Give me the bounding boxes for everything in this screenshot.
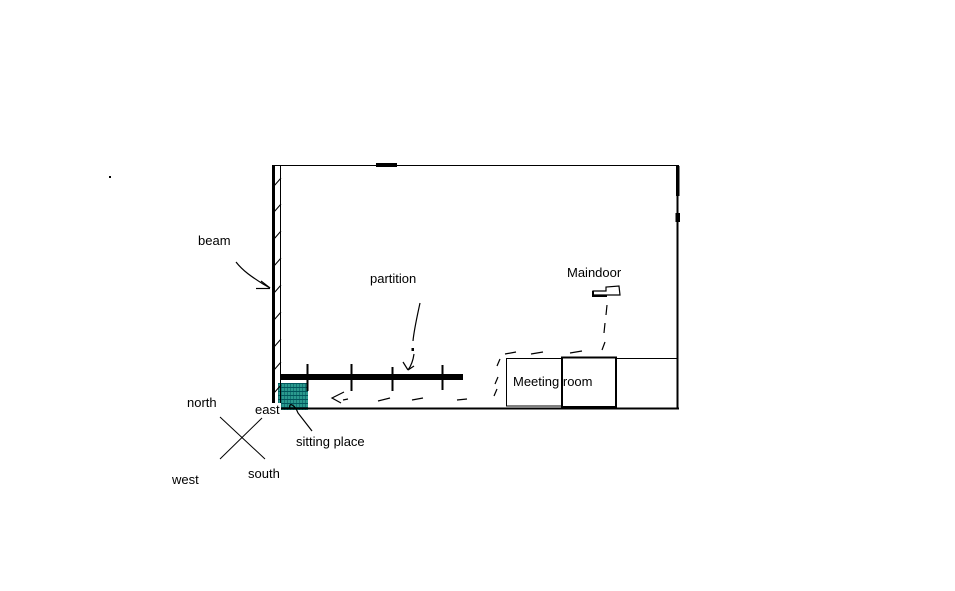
beam-wall-hatching xyxy=(274,178,281,393)
compass-west-label: west xyxy=(172,473,199,486)
partition-label: partition xyxy=(370,272,416,285)
compass-north-label: north xyxy=(187,396,217,409)
compass-south-label: south xyxy=(248,467,280,480)
stray-dot xyxy=(109,176,111,178)
meeting-room-label: Meeting room xyxy=(513,375,592,388)
compass-east-label: east xyxy=(254,403,281,416)
maindoor-label: Maindoor xyxy=(567,266,621,279)
route-arrowhead xyxy=(332,392,344,403)
partition-bar xyxy=(280,364,463,391)
maindoor-symbol xyxy=(593,286,620,296)
paint-canvas: beam partition Maindoor Meeting room sit… xyxy=(0,0,955,591)
sitting-place-label: sitting place xyxy=(296,435,365,448)
partition-arrow xyxy=(403,303,420,370)
beam-label: beam xyxy=(198,234,231,247)
sketch-linework xyxy=(0,0,955,591)
compass-cross xyxy=(220,417,265,459)
beam-arrow xyxy=(236,262,270,289)
